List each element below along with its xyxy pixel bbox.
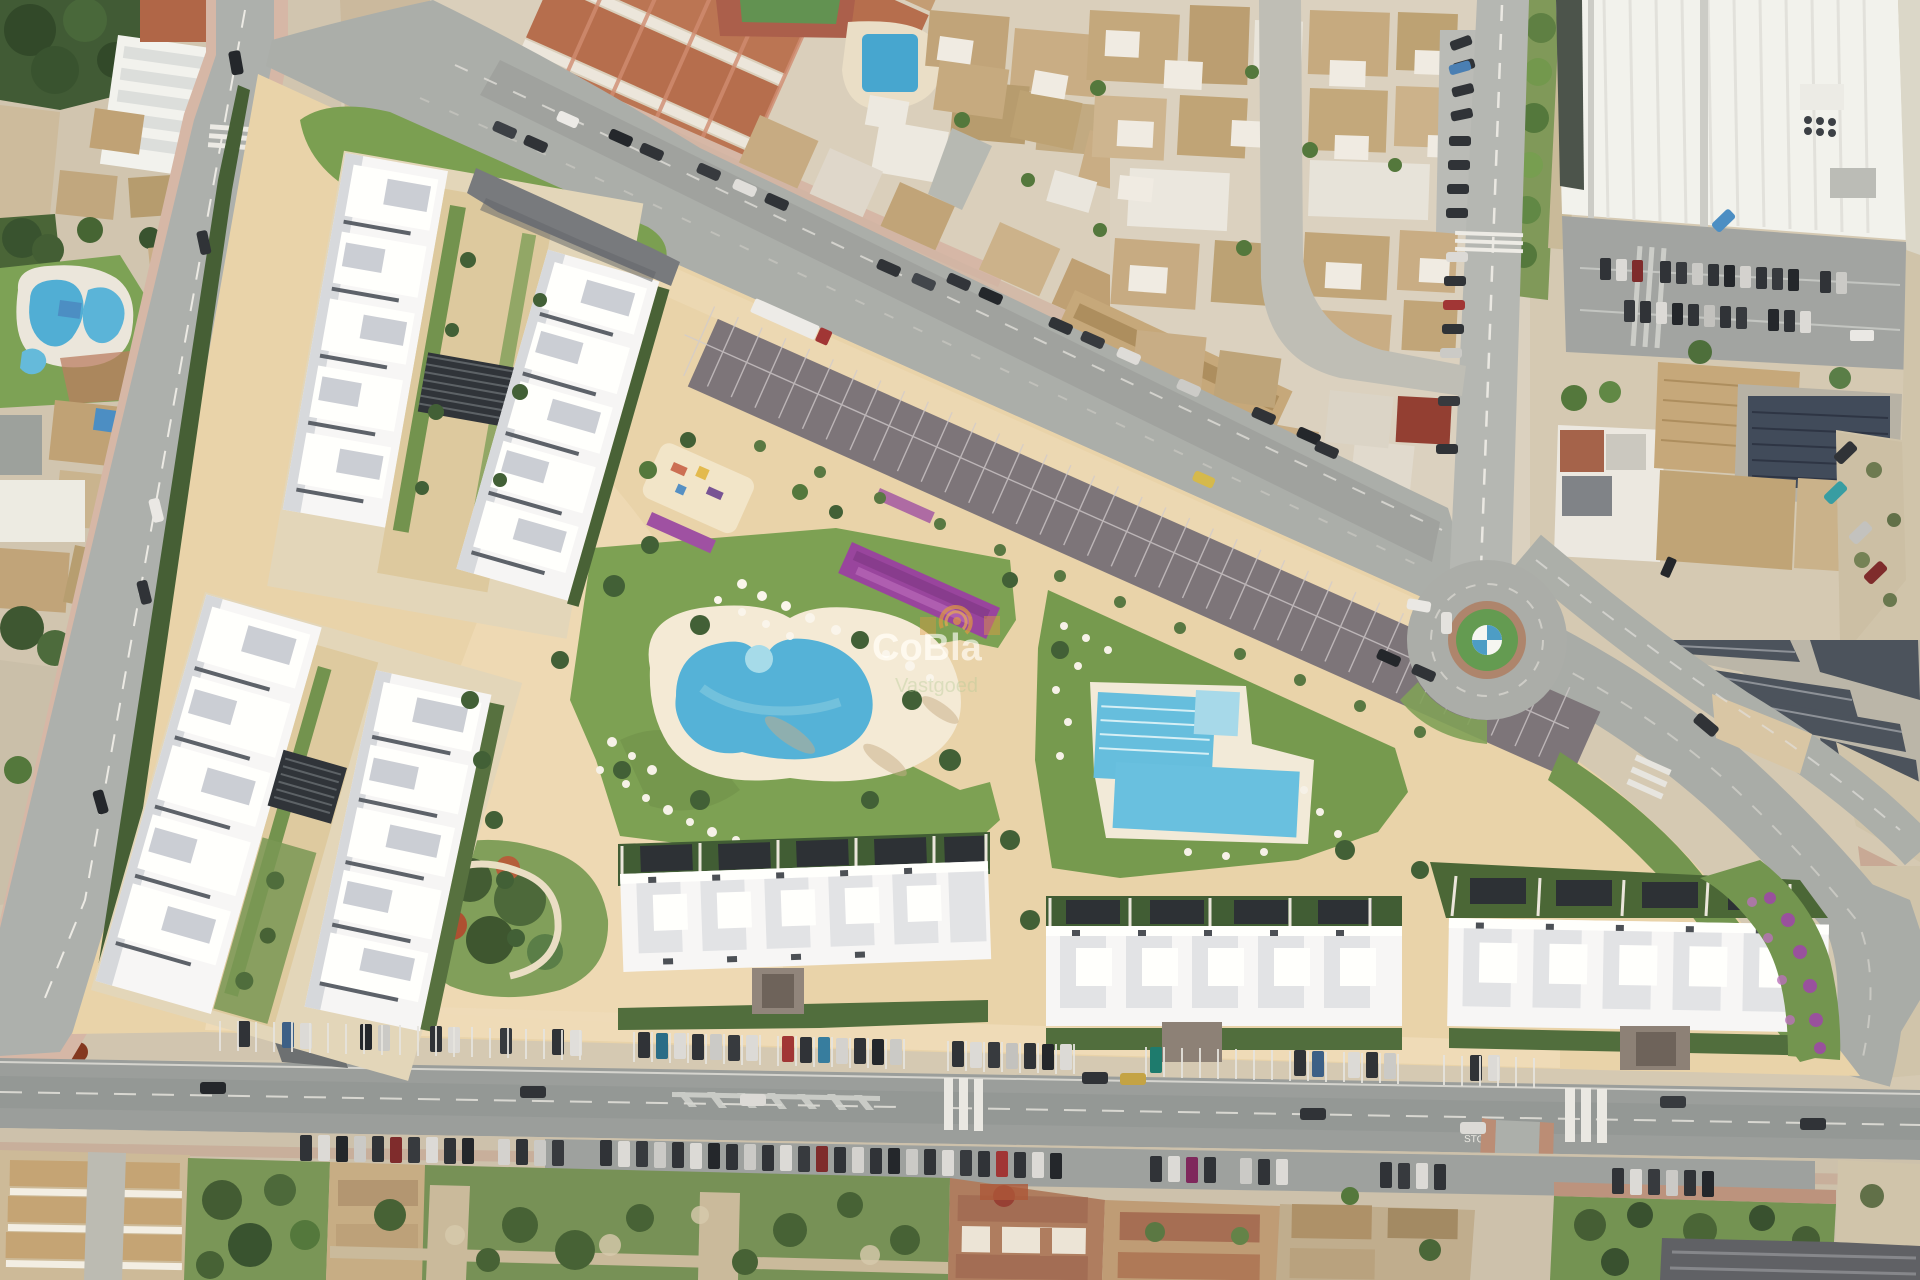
svg-text:CoBla: CoBla [872,627,983,669]
svg-text:Vastgoed: Vastgoed [895,675,978,697]
